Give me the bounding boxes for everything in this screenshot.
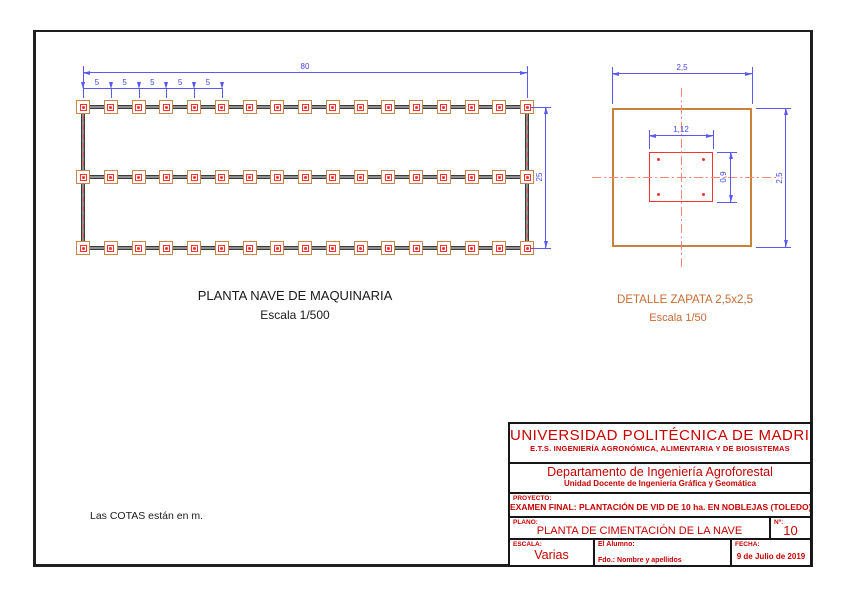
scale-value: Varias	[510, 548, 593, 562]
anchor-dot	[331, 247, 334, 250]
dim-arrow	[784, 240, 788, 247]
footing	[409, 100, 423, 114]
footing	[381, 100, 395, 114]
footing-pedestal	[163, 245, 170, 252]
anchor-dot	[220, 247, 223, 250]
footing	[104, 241, 118, 255]
footing-pedestal	[440, 104, 447, 111]
anchor-dot	[304, 176, 307, 179]
footing-pedestal	[218, 104, 225, 111]
footing-pedestal	[80, 174, 87, 181]
ext-line	[717, 202, 737, 203]
anchor-dot	[137, 176, 140, 179]
footing	[326, 100, 340, 114]
plan-view-scale: Escala 1/500	[260, 308, 329, 322]
footing	[465, 170, 479, 184]
anchor-dot	[220, 176, 223, 179]
title-block-project: PROYECTO: EXAMEN FINAL: PLANTACIÓN DE VI…	[510, 494, 810, 518]
footing-pedestal	[357, 104, 364, 111]
dim-line	[83, 88, 222, 89]
footing	[76, 100, 90, 114]
dim-zapata-width: 2,5	[676, 64, 687, 72]
footing	[104, 100, 118, 114]
anchor-dot	[165, 247, 168, 250]
title-block-bottom-row: ESCALA: Varias El Alumno: Fdo.: Nombre y…	[510, 540, 810, 565]
footing-pedestal	[468, 104, 475, 111]
anchor-dot	[359, 247, 362, 250]
footing	[187, 241, 201, 255]
footing-pedestal	[385, 174, 392, 181]
anchor-dot	[387, 106, 390, 109]
footing-pedestal	[246, 104, 253, 111]
university-name: UNIVERSIDAD POLITÉCNICA DE MADRID	[510, 424, 810, 444]
anchor-dot	[82, 106, 85, 109]
footing	[215, 100, 229, 114]
footing-pedestal	[413, 104, 420, 111]
anchor-dot	[442, 176, 445, 179]
project-name: EXAMEN FINAL: PLANTACIÓN DE VID DE 10 ha…	[510, 502, 810, 512]
footing-pedestal	[274, 174, 281, 181]
anchor-dot	[415, 247, 418, 250]
dim-arrow	[729, 152, 733, 159]
ext-line	[531, 107, 551, 108]
dim-bay: 5	[95, 79, 99, 87]
footing	[465, 100, 479, 114]
footing-pedestal	[496, 104, 503, 111]
footing	[326, 170, 340, 184]
dim-arrow	[83, 71, 90, 75]
anchor-dot	[415, 106, 418, 109]
footing-pedestal	[191, 174, 198, 181]
dim-total-height: 25	[536, 173, 544, 182]
footing-pedestal	[218, 174, 225, 181]
detail-view-scale: Escala 1/50	[649, 312, 706, 324]
scale-label: ESCALA:	[510, 540, 593, 548]
footing-pedestal	[440, 174, 447, 181]
ext-line	[166, 88, 167, 98]
footing	[215, 241, 229, 255]
detail-centerline-h	[592, 177, 778, 178]
footing	[354, 170, 368, 184]
footing	[381, 241, 395, 255]
anchor-dot	[248, 106, 251, 109]
footing	[270, 100, 284, 114]
footing	[492, 170, 506, 184]
anchor-dot	[304, 247, 307, 250]
detail-view-title: DETALLE ZAPATA 2,5x2,5	[617, 294, 753, 306]
footing-pedestal	[107, 245, 114, 252]
footing	[76, 241, 90, 255]
footing	[187, 170, 201, 184]
anchor-dot	[470, 247, 473, 250]
anchor-dot	[276, 176, 279, 179]
footing-pedestal	[274, 245, 281, 252]
anchor-dot	[442, 106, 445, 109]
footing-pedestal	[246, 174, 253, 181]
footing	[298, 170, 312, 184]
dim-arrow	[706, 134, 713, 138]
footing	[243, 100, 257, 114]
footing-pedestal	[496, 174, 503, 181]
ext-line	[752, 67, 753, 104]
footing	[437, 170, 451, 184]
title-block-department: Departamento de Ingeniería Agroforestal …	[510, 464, 810, 494]
anchor-dot	[387, 176, 390, 179]
anchor-dot	[359, 176, 362, 179]
dim-arrow	[544, 241, 548, 248]
footing	[132, 241, 146, 255]
dim-arrow	[729, 195, 733, 202]
anchor-dot	[82, 176, 85, 179]
school-name: E.T.S. INGENIERÍA AGRONÓMICA, ALIMENTARI…	[510, 444, 810, 453]
ext-line	[756, 247, 791, 248]
anchor-bolt	[702, 193, 705, 196]
dim-line	[785, 108, 786, 247]
footing	[492, 100, 506, 114]
anchor-dot	[331, 176, 334, 179]
plan-view-title: PLANTA NAVE DE MAQUINARIA	[198, 288, 393, 303]
anchor-bolt	[657, 193, 660, 196]
footing-pedestal	[357, 245, 364, 252]
anchor-dot	[276, 247, 279, 250]
ext-line	[139, 88, 140, 98]
dim-arrow	[649, 134, 656, 138]
footing	[215, 170, 229, 184]
anchor-dot	[331, 106, 334, 109]
ext-line	[194, 88, 195, 98]
footing-pedestal	[468, 245, 475, 252]
anchor-dot	[276, 106, 279, 109]
footing-pedestal	[524, 104, 531, 111]
anchor-dot	[526, 106, 529, 109]
units-note: Las COTAS están en m.	[90, 510, 203, 522]
dim-arrow	[612, 72, 619, 76]
anchor-dot	[109, 106, 112, 109]
footing-pedestal	[413, 174, 420, 181]
anchor-dot	[387, 247, 390, 250]
footing-pedestal	[329, 245, 336, 252]
anchor-dot	[109, 247, 112, 250]
footing	[104, 170, 118, 184]
footing-pedestal	[246, 245, 253, 252]
scale-cell: ESCALA: Varias	[510, 540, 595, 565]
footing	[465, 241, 479, 255]
anchor-dot	[193, 176, 196, 179]
ext-line	[111, 88, 112, 98]
ext-line	[717, 152, 737, 153]
footing-pedestal	[274, 104, 281, 111]
footing-pedestal	[524, 174, 531, 181]
footing-pedestal	[413, 245, 420, 252]
footing	[159, 170, 173, 184]
footing-pedestal	[357, 174, 364, 181]
footing	[437, 241, 451, 255]
footing-pedestal	[107, 104, 114, 111]
footing-pedestal	[524, 245, 531, 252]
anchor-dot	[220, 106, 223, 109]
footing-pedestal	[191, 104, 198, 111]
dim-arrow	[544, 107, 548, 114]
footing-pedestal	[468, 174, 475, 181]
dim-zapata-height: 2,5	[776, 172, 784, 183]
title-block: UNIVERSIDAD POLITÉCNICA DE MADRID E.T.S.…	[508, 422, 812, 567]
footing	[159, 100, 173, 114]
dim-bay: 5	[206, 79, 210, 87]
footing	[270, 241, 284, 255]
footing-pedestal	[385, 104, 392, 111]
anchor-dot	[137, 247, 140, 250]
anchor-dot	[359, 106, 362, 109]
anchor-dot	[193, 106, 196, 109]
anchor-dot	[248, 247, 251, 250]
footing	[243, 170, 257, 184]
footing-pedestal	[107, 174, 114, 181]
anchor-dot	[498, 247, 501, 250]
footing-pedestal	[135, 245, 142, 252]
footing-pedestal	[385, 245, 392, 252]
department-name: Departamento de Ingeniería Agroforestal	[510, 464, 810, 479]
student-cell: El Alumno: Fdo.: Nombre y apellidos	[595, 540, 732, 565]
sheet-number-cell: Nº: 10	[771, 518, 810, 538]
anchor-dot	[165, 106, 168, 109]
dim-line	[649, 135, 713, 136]
footing	[492, 241, 506, 255]
drawing-sheet: 8055555252,51,120,92,5 PLANTA NAVE DE MA…	[0, 0, 848, 599]
student-signature-line: Fdo.: Nombre y apellidos	[598, 557, 682, 564]
teaching-unit-name: Unidad Docente de Ingeniería Gráfica y G…	[510, 479, 810, 488]
date-label: FECHA:	[732, 540, 810, 548]
footing	[132, 170, 146, 184]
detail-centerline-v	[681, 88, 682, 268]
footing-pedestal	[80, 104, 87, 111]
anchor-dot	[470, 106, 473, 109]
dim-line	[83, 72, 527, 73]
anchor-dot	[137, 106, 140, 109]
footing-pedestal	[496, 245, 503, 252]
footing	[270, 170, 284, 184]
dim-bay: 5	[122, 79, 126, 87]
dim-line	[545, 107, 546, 248]
footing-pedestal	[135, 174, 142, 181]
footing	[520, 170, 534, 184]
footing-pedestal	[302, 174, 309, 181]
footing	[437, 100, 451, 114]
dim-arrow	[745, 72, 752, 76]
footing	[354, 241, 368, 255]
anchor-bolt	[702, 158, 705, 161]
anchor-dot	[82, 247, 85, 250]
footing-pedestal	[302, 104, 309, 111]
footing-pedestal	[163, 104, 170, 111]
footing	[159, 241, 173, 255]
anchor-dot	[415, 176, 418, 179]
title-block-plan-row: PLANO: PLANTA DE CIMENTACIÓN DE LA NAVE …	[510, 518, 810, 540]
ext-line	[83, 88, 84, 98]
footing	[326, 241, 340, 255]
ext-line	[531, 248, 551, 249]
anchor-dot	[526, 247, 529, 250]
student-label: El Alumno:	[595, 540, 730, 548]
dim-bay: 5	[178, 79, 182, 87]
footing-pedestal	[440, 245, 447, 252]
footing	[243, 241, 257, 255]
footing-pedestal	[163, 174, 170, 181]
dim-line	[612, 73, 752, 74]
dim-arrow	[520, 71, 527, 75]
footing-pedestal	[302, 245, 309, 252]
anchor-dot	[498, 176, 501, 179]
dim-bay: 5	[150, 79, 154, 87]
footing-pedestal	[80, 245, 87, 252]
footing-pedestal	[329, 104, 336, 111]
title-block-header: UNIVERSIDAD POLITÉCNICA DE MADRID E.T.S.…	[510, 424, 810, 464]
footing-pedestal	[329, 174, 336, 181]
footing-pedestal	[218, 245, 225, 252]
anchor-dot	[165, 176, 168, 179]
dim-total-width: 80	[301, 63, 310, 71]
footing-pedestal	[191, 245, 198, 252]
ext-line	[527, 66, 528, 98]
footing	[187, 100, 201, 114]
anchor-dot	[442, 247, 445, 250]
plan-name: PLANTA DE CIMENTACIÓN DE LA NAVE	[510, 525, 769, 537]
anchor-dot	[109, 176, 112, 179]
anchor-dot	[498, 106, 501, 109]
anchor-dot	[193, 247, 196, 250]
footing	[132, 100, 146, 114]
anchor-bolt	[657, 158, 660, 161]
date-value: 9 de Julio de 2019	[732, 552, 810, 561]
dim-plate-width: 1,12	[673, 126, 689, 134]
footing	[409, 170, 423, 184]
ext-line	[713, 130, 714, 149]
dim-plate-height: 0,9	[720, 171, 728, 182]
anchor-dot	[304, 106, 307, 109]
footing	[298, 100, 312, 114]
footing-pedestal	[135, 104, 142, 111]
footing	[409, 241, 423, 255]
footing	[381, 170, 395, 184]
dim-arrow	[784, 108, 788, 115]
footing	[76, 170, 90, 184]
date-cell: FECHA: 9 de Julio de 2019	[732, 540, 810, 565]
footing	[354, 100, 368, 114]
project-label: PROYECTO:	[510, 494, 810, 502]
anchor-dot	[526, 176, 529, 179]
footing	[298, 241, 312, 255]
ext-line	[222, 88, 223, 98]
anchor-dot	[248, 176, 251, 179]
anchor-dot	[470, 176, 473, 179]
plan-name-cell: PLANO: PLANTA DE CIMENTACIÓN DE LA NAVE	[510, 518, 771, 538]
